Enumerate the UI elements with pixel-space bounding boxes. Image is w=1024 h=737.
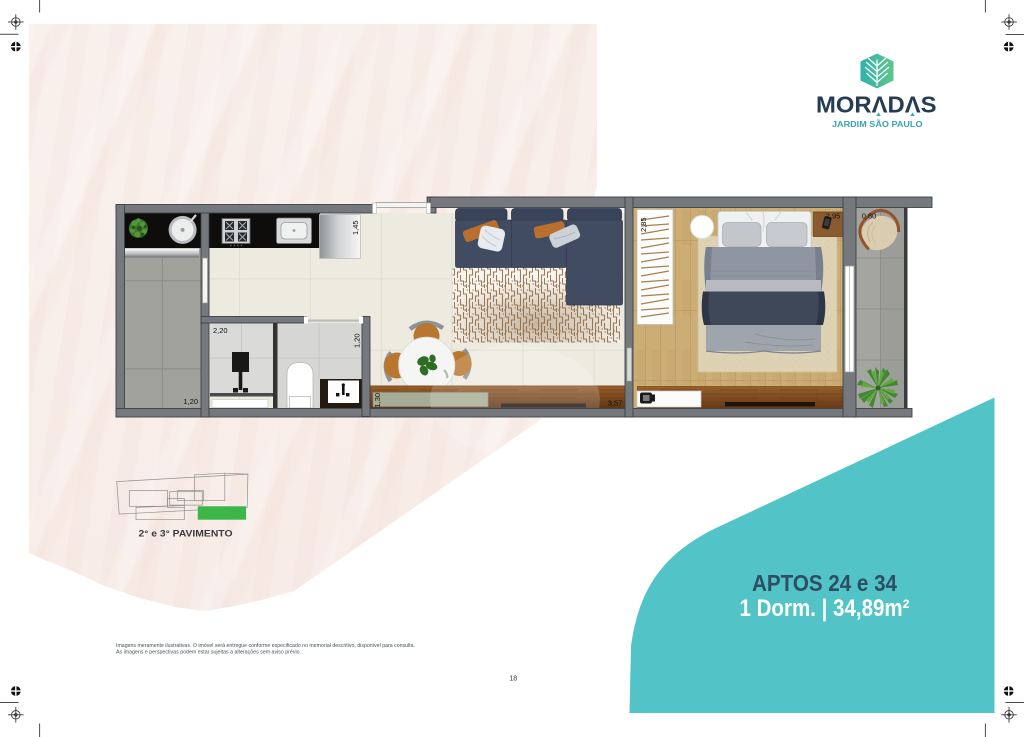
svg-text:2° e 3° PAVIMENTO: 2° e 3° PAVIMENTO — [139, 529, 233, 540]
svg-text:2,85: 2,85 — [639, 217, 648, 232]
svg-text:0,80: 0,80 — [862, 212, 877, 221]
svg-text:2,95: 2,95 — [826, 212, 841, 221]
svg-text:1,30: 1,30 — [373, 393, 382, 408]
svg-text:MORΛDΛS: MORΛDΛS — [816, 92, 937, 118]
svg-text:18: 18 — [509, 676, 517, 683]
svg-text:1,20: 1,20 — [353, 333, 362, 348]
svg-text:1,20: 1,20 — [183, 397, 198, 406]
svg-text:1,45: 1,45 — [351, 220, 360, 235]
svg-text:As imagens e perspectivas pode: As imagens e perspectivas podem estar su… — [116, 650, 301, 656]
svg-text:3,57: 3,57 — [608, 399, 623, 408]
svg-text:1 Dorm. | 34,89m²: 1 Dorm. | 34,89m² — [740, 595, 910, 622]
svg-text:APTOS 24 e 34: APTOS 24 e 34 — [752, 570, 897, 596]
svg-text:Imagens meramente ilustrativas: Imagens meramente ilustrativas. O imóvel… — [116, 643, 415, 649]
svg-text:2,20: 2,20 — [213, 326, 228, 335]
svg-text:JARDIM SÃO PAULO: JARDIM SÃO PAULO — [832, 120, 923, 129]
